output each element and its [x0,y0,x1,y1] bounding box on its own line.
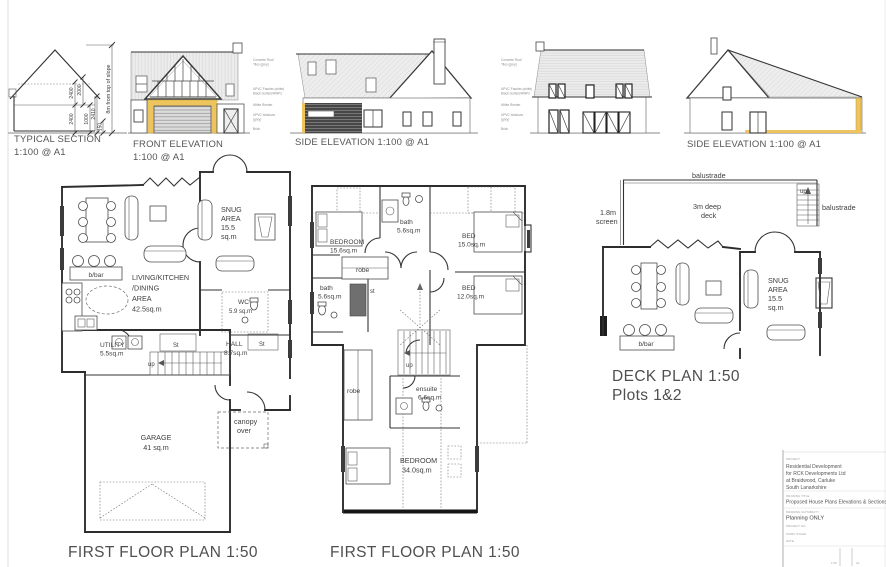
label-bed15-area: 15.0sq.m [458,242,486,249]
note-windows-2: (grey) [253,118,261,122]
garage-door [154,106,211,133]
label-bath-top: bath [400,219,413,226]
plan2-first-floor: BEDROOM 15.6sq.m bath 5.6sq.m BED 15.0sq… [310,186,531,561]
note2-roof-1: Concrete Roof [501,58,522,62]
dim-slope-note: 8m from top of slope [106,64,112,113]
label-living-2: /DINING [132,284,160,293]
label-living-1: LIVING/KITCHEN [132,273,189,282]
note-brick: Brick [253,127,260,131]
label-bath-left: bath [320,285,333,292]
rear-doors [549,110,630,133]
rear-elevation-drawing [530,42,660,133]
label-deck-2: deck [701,211,717,220]
tb-meta-1: PROJECT NO. [786,524,806,528]
front-elevation-title: FRONT ELEVATION [133,139,223,150]
tb-project-line-2: for RCK Developments Ltd [786,471,846,477]
dim-2400-upper: 2400 [69,87,75,98]
label-bed15: BED [462,233,476,240]
tb-meta-3: DATE [786,539,794,543]
material-notes-front: Concrete Roof Tiles (grey) UPVC Fascias … [253,58,284,131]
plan1-doors [118,155,265,410]
note-fascia-2: Black Gutters/RWPs [253,92,282,96]
label-deck-1: 3m deep [693,202,721,211]
title-block: PROJECT Residential Development for RCK … [783,450,886,567]
label-screen-1: 1.8m [600,208,616,217]
label-deck-snug-4: sq.m [768,303,784,312]
label-snug-4: sq.m [221,232,237,241]
label-utility-area: 5.5sq.m [100,351,124,358]
label-bedroom1: BEDROOM [330,239,364,246]
label-deck-snug-3: 15.5 [768,294,782,303]
plan1-first-floor: SNUG AREA 15.5 sq.m LIVING/KITCHEN /DINI… [60,155,292,561]
typical-section-drawing: 2400 2000 2400 1000 2410 150 8m from top… [8,42,127,158]
label-bed12: BED [462,285,476,292]
tb-suitability-label: DRAWING SUITABILITY [786,510,819,514]
note2-windows-1: UPVC windows [501,113,523,117]
note-fascia-1: UPVC Fascias (white) [253,87,284,91]
side-elevation-right-drawing: SIDE ELEVATION 1:100 @ A1 [684,38,866,150]
front-elevation-scale: 1:100 @ A1 [133,152,185,163]
note-windows-1: UPVC windows [253,113,275,117]
plan1-title: FIRST FLOOR PLAN 1:50 [68,544,258,561]
tb-project-label: PROJECT [786,457,800,461]
dim-2000: 2000 [77,84,83,95]
label-master: BEDROOM [400,456,437,465]
label-balustrade-top: balustrade [692,171,726,180]
dim-2400-lower: 2400 [69,113,75,124]
plan3-title-1: DECK PLAN 1:50 [612,368,740,385]
label-up-plan1: up [148,362,155,368]
label-screen-2: screen [596,217,618,226]
label-bbar: b/bar [88,272,104,279]
note-roof-2: Tiles (grey) [253,63,269,67]
note2-fascia-1: UPVC Fascias (white) [501,87,532,91]
label-balustrade-right: balustrade [822,203,856,212]
label-living-3: AREA [132,294,152,303]
note-roof-1: Concrete Roof [253,58,274,62]
label-wc: WC [238,299,249,306]
label-snug-2: AREA [221,214,241,223]
label-up-plan2: up [406,363,413,369]
label-up-plan3: up [800,189,807,195]
label-snug-3: 15.5 [221,223,235,232]
label-deck-snug-2: AREA [768,285,788,294]
note2-windows-2: (grey) [501,118,509,122]
tb-sheet: A1 [856,561,860,565]
tb-project-line-3: at Braidwood, Carluke [786,478,835,484]
label-bath-left-area: 5.6sq.m [318,294,342,301]
plan3-furniture [620,263,830,350]
tb-project-line-4: South Lanarkshire [786,485,827,491]
note2-roof-2: Tiles (grey) [501,63,517,67]
side-elevation-left-drawing: SIDE ELEVATION 1:100 @ A1 [290,39,478,148]
plan3-title-2: Plots 1&2 [612,387,682,404]
label-deck-snug-1: SNUG [768,276,789,285]
dim-2410: 2410 [91,108,97,119]
label-living-4: 42.5sq.m [132,305,162,314]
tb-meta-2: WORK STAGE [786,532,806,536]
plan3-deck-plan: balustrade balustrade 3m deep deck 1.8m … [596,171,856,404]
label-deck-bbar: b/bar [638,341,654,348]
note-render: White Render [253,103,273,107]
label-ensuite-area: 6.6sq.m [418,395,442,402]
label-hall-area: 8.7sq.m [224,350,248,357]
material-notes-side: Concrete Roof Tiles (grey) UPVC Fascias … [501,58,532,131]
plan1-garage-door [100,482,205,520]
note2-fascia-2: Black Gutters/RWPs [501,92,530,96]
plan1-stairs [150,352,230,375]
drawing-sheet: 2400 2000 2400 1000 2410 150 8m from top… [0,0,886,567]
side-elevation-left-title: SIDE ELEVATION 1:100 @ A1 [295,137,429,148]
dim-1000: 1000 [84,113,90,124]
dark-cladding [305,103,362,133]
label-bath-top-area: 5.6sq.m [397,228,421,235]
label-canopy-1: canopy [234,417,258,426]
label-garage-area: 41 sq.m [143,443,169,452]
label-robe-low: robe [347,388,361,395]
tb-drawing-title: Proposed House Plans Elevations & Sectio… [786,500,886,506]
label-hall: HALL [226,341,243,348]
label-robe-top: robe [356,267,370,274]
tb-suitability: Planning ONLY [786,516,824,522]
tb-scale: 1:50 [831,561,837,565]
tb-drawing-label: DRAWING TITLE [786,494,809,498]
label-st-upper: St [173,343,179,349]
label-ensuite: ensuite [416,386,438,393]
label-master-area: 34.0sq.m [402,466,432,475]
plan2-title: FIRST FLOOR PLAN 1:50 [330,544,520,561]
note2-brick: Brick [501,127,508,131]
note2-render: White Render [501,103,521,107]
dim-150: 150 [98,123,104,132]
rear-upper-windows [549,84,632,98]
typical-section-title: TYPICAL SECTION [14,134,101,145]
label-st-plan2: st [370,289,375,295]
label-garage: GARAGE [141,433,172,442]
side-elevation-right-title: SIDE ELEVATION 1:100 @ A1 [687,139,821,150]
architectural-sheet-svg: 2400 2000 2400 1000 2410 150 8m from top… [0,0,886,567]
front-elevation-drawing: FRONT ELEVATION 1:100 @ A1 [128,43,250,163]
label-wc-area: 5.9 sq.m [229,309,252,315]
label-bed12-area: 12.0sq.m [457,294,485,301]
label-st-hall: St [259,342,265,348]
typical-section-scale: 1:100 @ A1 [14,147,66,158]
label-utility: UTILITY [100,342,125,349]
label-bedroom1-area: 15.6sq.m [330,248,358,255]
label-snug-1: SNUG [221,205,242,214]
tb-project-line-1: Residential Development [786,464,842,470]
label-canopy-2: over [237,426,252,435]
